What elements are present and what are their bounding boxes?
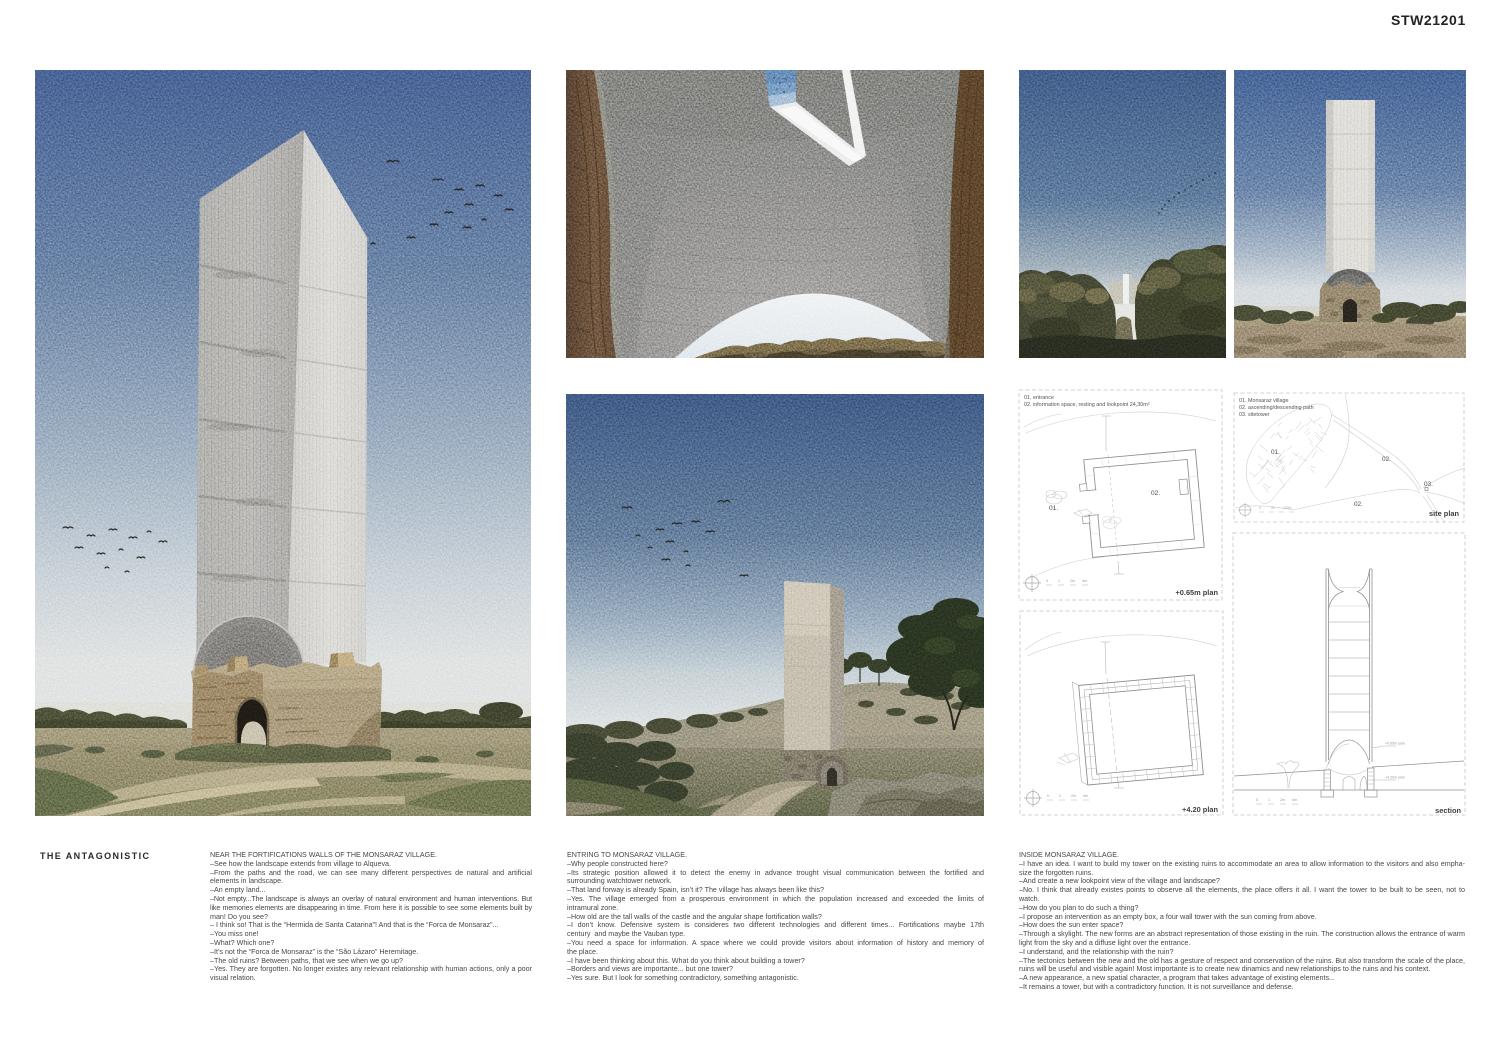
svg-text:01. Monsaraz village: 01. Monsaraz village xyxy=(1239,398,1288,404)
svg-text:01.: 01. xyxy=(1271,449,1280,456)
svg-text:02. ascending/descending path: 02. ascending/descending path xyxy=(1239,405,1314,411)
svg-text:2m: 2m xyxy=(1280,798,1285,802)
svg-text:0: 0 xyxy=(1256,798,1258,802)
svg-text:1: 1 xyxy=(1058,579,1060,583)
svg-text:1: 1 xyxy=(1059,794,1061,798)
svg-text:50: 50 xyxy=(1271,506,1275,510)
svg-text:4m: 4m xyxy=(1292,798,1297,802)
svg-text:site plan: site plan xyxy=(1429,509,1459,518)
svg-text:02.: 02. xyxy=(1382,456,1391,463)
svg-text:0: 0 xyxy=(1259,506,1261,510)
svg-text:+4.20 plan: +4.20 plan xyxy=(1182,805,1218,814)
svg-text:4m: 4m xyxy=(1082,579,1087,583)
svg-text:+0.65m plan: +0.65m plan xyxy=(1175,588,1218,597)
svg-text:01. entrance: 01. entrance xyxy=(1024,395,1054,401)
svg-text:2m: 2m xyxy=(1070,579,1075,583)
svg-text:02. information space, resting: 02. information space, resting and lookp… xyxy=(1024,402,1150,408)
svg-text:1: 1 xyxy=(1268,798,1270,802)
svg-text:100m: 100m xyxy=(1283,506,1292,510)
svg-text:03. sitetower: 03. sitetower xyxy=(1239,412,1270,418)
svg-text:02.: 02. xyxy=(1151,490,1160,497)
svg-text:2m: 2m xyxy=(1071,794,1076,798)
svg-text:section: section xyxy=(1435,806,1461,815)
svg-text:02.: 02. xyxy=(1354,501,1363,508)
svg-text:0: 0 xyxy=(1046,579,1048,583)
svg-text:0: 0 xyxy=(1047,794,1049,798)
svg-text:4m: 4m xyxy=(1083,794,1088,798)
svg-text:+0.65m plan: +0.65m plan xyxy=(1385,742,1405,746)
svg-text:03.: 03. xyxy=(1424,481,1433,488)
svg-text:01.: 01. xyxy=(1049,505,1058,512)
svg-text:+4.20m plan: +4.20m plan xyxy=(1385,776,1405,780)
